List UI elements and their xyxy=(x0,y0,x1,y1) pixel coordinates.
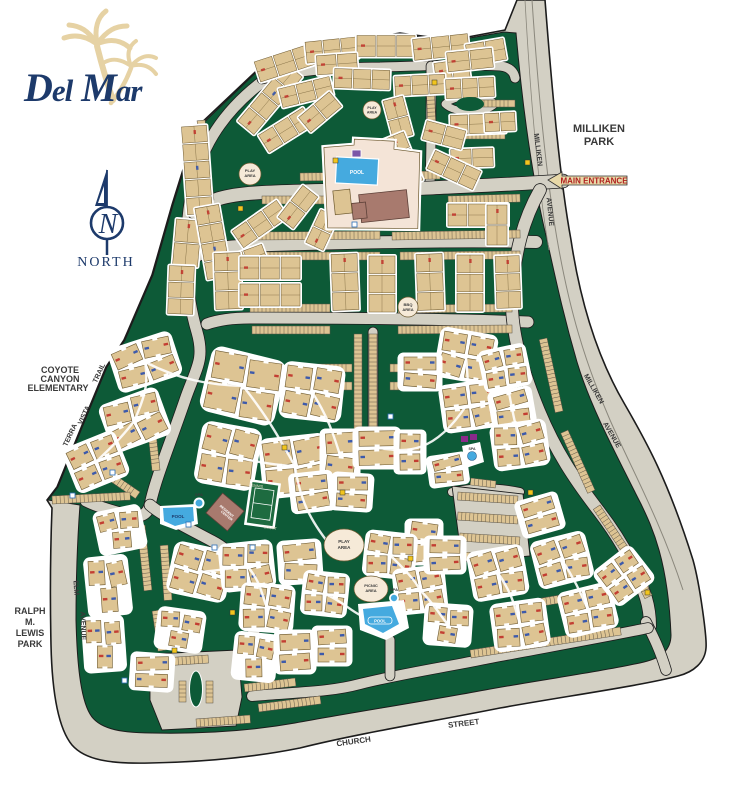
svg-text:AREA: AREA xyxy=(365,588,376,593)
svg-text:AREA: AREA xyxy=(338,545,352,550)
svg-text:AREA: AREA xyxy=(367,111,378,115)
svg-text:SPA: SPA xyxy=(468,447,476,451)
svg-text:STREET: STREET xyxy=(447,717,480,730)
svg-text:M.: M. xyxy=(25,617,35,627)
svg-text:AREA: AREA xyxy=(244,173,255,178)
svg-text:POOL: POOL xyxy=(350,170,364,176)
svg-text:ELEMENTARY: ELEMENTARY xyxy=(27,383,88,393)
svg-text:LEWIS: LEWIS xyxy=(16,628,45,638)
svg-text:NORTH: NORTH xyxy=(77,255,134,270)
svg-text:MAIN ENTRANCE: MAIN ENTRANCE xyxy=(560,177,628,186)
svg-text:N: N xyxy=(98,209,119,240)
svg-text:PLAY: PLAY xyxy=(338,539,350,544)
svg-text:MILLIKEN: MILLIKEN xyxy=(573,123,625,135)
svg-text:AREA: AREA xyxy=(402,307,413,312)
svg-text:PARK: PARK xyxy=(584,136,614,148)
svg-text:ELM: ELM xyxy=(71,580,79,595)
svg-text:RALPH: RALPH xyxy=(15,606,46,616)
svg-text:POOL: POOL xyxy=(374,619,386,624)
svg-text:POOL: POOL xyxy=(172,514,185,519)
svg-text:PLAY: PLAY xyxy=(367,106,377,110)
svg-text:SPA: SPA xyxy=(390,587,398,592)
svg-text:PARK: PARK xyxy=(18,639,43,649)
svg-text:SPA: SPA xyxy=(195,492,203,497)
svg-text:AVENUE: AVENUE xyxy=(79,612,87,641)
svg-text:Del Mar: Del Mar xyxy=(23,65,143,110)
